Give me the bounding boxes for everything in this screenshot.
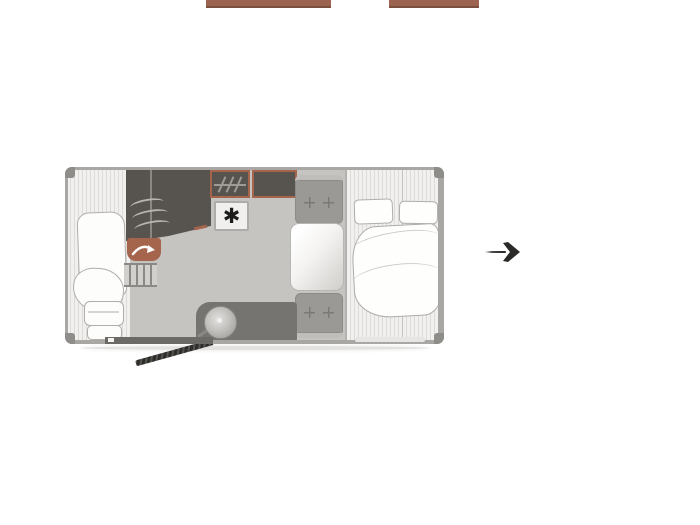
bed-area [345,170,441,341]
wall-corner-cap [434,333,444,344]
duvet-fold-line [351,258,444,300]
dinette-seat-bottom [295,293,343,338]
stitch-cross-icon [323,197,334,208]
sink-drain-dot [217,318,222,323]
duvet [351,223,444,319]
duvet-fold-line [351,224,443,267]
wall-corner-cap [434,167,444,178]
ground-shadow [80,346,430,350]
snowflake-icon: ✱ [223,206,241,227]
pillow-right [399,201,438,225]
wall-notch [108,338,114,342]
entry-arrow-icon [503,242,520,262]
stitch-cross-icon [304,307,315,318]
caravan-body: ✱ [65,167,444,344]
stitch-cross-icon [304,197,315,208]
front-lounge-area [67,169,130,342]
cropped-cabinet-bar-right [389,0,479,8]
bottom-wall-dark-segment [105,337,213,344]
kitchen-unit [126,169,211,241]
washroom [196,302,297,341]
wall-corner-cap [65,333,75,344]
floorplan-canvas: ✱ [0,0,700,525]
curved-arrow-icon [127,238,161,261]
cabinet-unit [252,170,297,198]
bed-base-front-inset [355,337,425,342]
dinette-table [290,223,344,291]
pillow-left [354,198,394,224]
stitch-cross-icon [323,307,334,318]
step-grate [124,263,157,287]
dinette-seat-top [295,175,343,224]
cushion-seam [88,311,119,313]
swivel-unit [127,238,161,261]
lounge-seat-cushion [84,301,124,326]
wardrobe-unit [210,170,250,198]
cropped-cabinet-bar-left [206,0,331,8]
wall-corner-cap [65,167,75,178]
fridge: ✱ [214,201,249,231]
hanging-rail-bar [214,184,246,186]
